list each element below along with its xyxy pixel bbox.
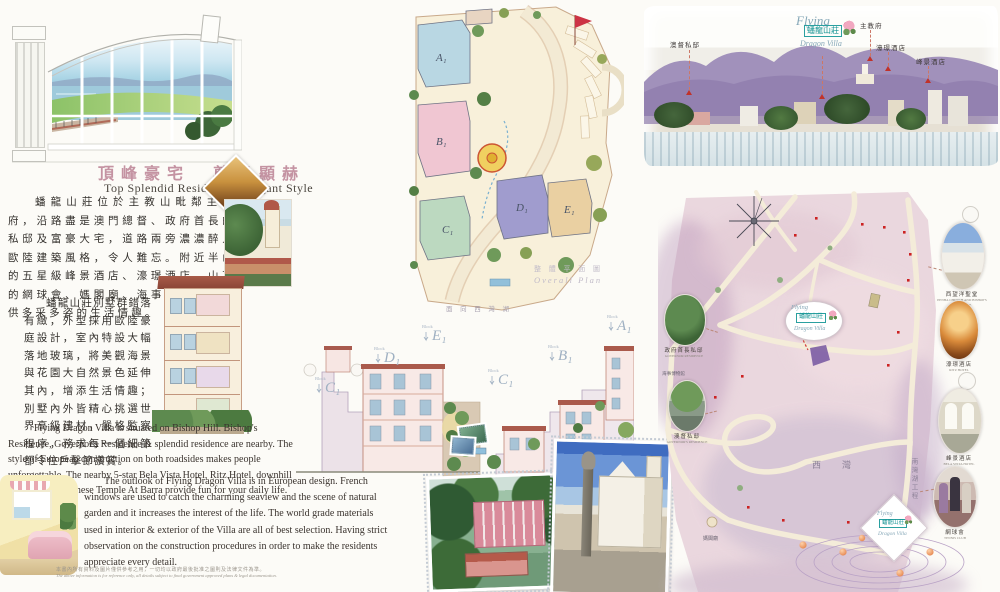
logo-dragon-villa: Dragon Villa bbox=[794, 326, 825, 332]
leader-line bbox=[888, 52, 889, 66]
roof-wall bbox=[225, 258, 291, 264]
trees bbox=[896, 108, 926, 130]
caption-en: RITZ HOTEL bbox=[934, 368, 984, 373]
svg-text:E₁: E₁ bbox=[431, 328, 446, 344]
elevation-left-section bbox=[296, 346, 480, 480]
building bbox=[948, 96, 968, 126]
disclaimer-en: The above information is for reference o… bbox=[56, 573, 386, 578]
temple-icon bbox=[707, 517, 717, 527]
label-a1: A₁ bbox=[435, 52, 447, 64]
tree-canopy bbox=[224, 204, 263, 256]
caption-zh: 網球會 bbox=[930, 528, 980, 536]
arch bbox=[945, 403, 957, 429]
floor-line bbox=[164, 394, 240, 395]
statue-column bbox=[581, 463, 594, 556]
window-view-illustration bbox=[6, 4, 242, 166]
label-block-a1: Block A₁ bbox=[607, 314, 631, 334]
pilaster-column bbox=[12, 26, 46, 162]
leader-line bbox=[928, 66, 929, 78]
figure bbox=[962, 483, 971, 513]
figure bbox=[939, 483, 948, 513]
governors-private-residence-photo bbox=[668, 380, 706, 432]
bela-vista-hotel-photo bbox=[938, 388, 982, 454]
ritz-hotel-photo bbox=[939, 300, 979, 360]
floor-line bbox=[164, 326, 240, 327]
statue bbox=[581, 451, 596, 469]
elevation-windows bbox=[370, 374, 431, 441]
logo-name-zh: 蟠龍山莊 bbox=[879, 519, 907, 528]
disclaimer-zh: 本書內所有資料及圖片僅供參考之用，一切均以政府最後批准之圖則及法律文件為準。 bbox=[56, 566, 386, 573]
label-block-e1: Block E₁ bbox=[422, 324, 446, 344]
rose-icon bbox=[828, 310, 838, 320]
label-c1: C₁ bbox=[442, 224, 453, 236]
pilaster-capital bbox=[12, 26, 46, 40]
site-plan: A₁ B₁ C₁ D₁ E₁ 整 體 平 面 圖 Overall Plan 面 … bbox=[406, 3, 624, 317]
rose-icon bbox=[842, 20, 857, 35]
red-arrow bbox=[925, 78, 931, 83]
church-facade bbox=[597, 476, 664, 549]
plan-caption-en: Overall Plan bbox=[534, 275, 602, 285]
pink-facade bbox=[472, 500, 545, 548]
pilaster-base bbox=[12, 150, 46, 162]
villa-window bbox=[184, 298, 196, 314]
government-house-photo bbox=[224, 199, 292, 287]
caption-zh: 西望洋聖堂 bbox=[932, 290, 992, 298]
building bbox=[740, 106, 758, 126]
villa-window bbox=[170, 298, 182, 314]
callout-caption: 峰景酒店 BELA VISTA HOTEL bbox=[932, 454, 986, 467]
callout-caption: 政府首長私邸 GOVERNOR RESIDENCE bbox=[656, 346, 712, 359]
label-d1: D₁ bbox=[515, 202, 528, 214]
interior-sketch bbox=[0, 475, 78, 575]
red-arrow bbox=[885, 66, 891, 71]
red-arrow bbox=[686, 90, 692, 95]
logo-dragon-villa: Dragon Villa bbox=[878, 532, 907, 538]
plan-caption-zh: 整 體 平 面 圖 bbox=[534, 264, 603, 273]
svg-text:D₁: D₁ bbox=[383, 350, 400, 366]
leader-line bbox=[822, 56, 823, 94]
villa-window bbox=[184, 334, 196, 350]
elevation-labels: Block C₁ Block D₁ Block E₁ Block C₁ Bloc… bbox=[315, 314, 631, 396]
penha-church-photo-stamp bbox=[550, 438, 672, 592]
logo-name-zh: 蟠龍山莊 bbox=[804, 25, 842, 37]
callout-caption: 澳督私邸 GOVERNOR'S RESIDENCE bbox=[662, 432, 712, 445]
pool bbox=[490, 279, 510, 286]
legal-disclaimer: 本書內所有資料及圖片僅供參考之用，一切均以政府最後批准之圖則及法律文件為準。 T… bbox=[56, 566, 386, 578]
decorative-ring bbox=[962, 206, 979, 223]
svg-text:B₁: B₁ bbox=[558, 348, 572, 364]
label-block-b1: Block B₁ bbox=[548, 344, 572, 364]
cutaway-room bbox=[196, 294, 230, 316]
map-label-sai-van: 西 灣 bbox=[812, 458, 857, 471]
water-reflections bbox=[644, 132, 998, 166]
logo-flying: Flying bbox=[791, 305, 808, 312]
tower-dome bbox=[264, 200, 279, 210]
tower bbox=[265, 206, 280, 248]
brand-logo: Flying 蟠龍山莊 Dragon Villa bbox=[796, 14, 858, 54]
logo-name-zh: 蟠龍山莊 bbox=[796, 313, 826, 323]
arch bbox=[962, 403, 974, 429]
logo-flying: Flying bbox=[877, 511, 893, 517]
caption-zh: 澳督私邸 bbox=[662, 432, 712, 440]
callout-caption: 濠璟酒店 RITZ HOTEL bbox=[934, 360, 984, 373]
penha-hill-panorama: 澳督私邸 主教府 濠璟酒店 峰景酒店 Flying 蟠龍山莊 Dragon Vi… bbox=[644, 6, 998, 166]
caption-en: GOVERNOR RESIDENCE bbox=[656, 354, 712, 359]
governor-residence-photo bbox=[664, 294, 706, 346]
floor-line bbox=[164, 360, 240, 361]
awning bbox=[10, 481, 50, 490]
caption-en: TENNIS CLUB bbox=[930, 536, 980, 541]
panorama-label-bishops-residence: 主教府 bbox=[860, 20, 883, 30]
caption-zh: 濠璟酒店 bbox=[934, 360, 984, 368]
mini-stamp bbox=[451, 437, 474, 454]
leader-line bbox=[689, 50, 690, 90]
panorama-label-governor-residence: 澳督私邸 bbox=[670, 39, 700, 49]
panorama-label-bela-vista-hotel: 峰景酒店 bbox=[916, 56, 946, 66]
red-arrow bbox=[819, 94, 825, 99]
caption-zh: 政府首長私邸 bbox=[656, 346, 712, 354]
penha-church-body bbox=[856, 74, 874, 84]
cutaway-room bbox=[196, 332, 230, 354]
villa-window bbox=[170, 368, 182, 384]
rose-icon bbox=[904, 515, 913, 524]
label-e1: E₁ bbox=[563, 204, 575, 216]
villa-window bbox=[184, 368, 196, 384]
trees bbox=[824, 94, 870, 124]
red-roof-houses bbox=[465, 551, 529, 577]
pilaster-shaft bbox=[15, 42, 45, 148]
label-b1: B₁ bbox=[436, 136, 447, 148]
caption-en: GOVERNOR'S RESIDENCE bbox=[662, 440, 712, 445]
villa-window bbox=[170, 334, 182, 350]
logo-dragon-villa: Dragon Villa bbox=[800, 40, 842, 48]
label-block-d1: Block D₁ bbox=[374, 346, 400, 366]
panorama-label-ritz-hotel: 濠璟酒店 bbox=[876, 42, 906, 52]
caption-zh: 峰景酒店 bbox=[932, 454, 986, 462]
villa-cutaway-illustration bbox=[156, 276, 248, 434]
tennis-club-photo bbox=[933, 466, 977, 528]
plaza-center bbox=[487, 153, 497, 163]
diamond-logo-content: Flying 蟠龍山莊 Dragon Villa bbox=[871, 505, 917, 551]
figure bbox=[950, 477, 960, 511]
map-label-maritime-museum: 海事博物館 bbox=[662, 371, 685, 377]
potted-plant bbox=[60, 503, 76, 533]
label-block-c1-right: Block C₁ bbox=[488, 368, 513, 388]
leader-line bbox=[870, 30, 871, 56]
brochure-page: 頂峰豪宅 尊貴顯赫 Top Splendid Residence / Elega… bbox=[0, 0, 1000, 592]
trees bbox=[654, 102, 694, 128]
svg-text:C₁: C₁ bbox=[498, 372, 513, 388]
building bbox=[928, 90, 942, 124]
map-label-ma-kok-temple: 媽閣廟 bbox=[703, 535, 718, 542]
trees bbox=[764, 106, 798, 130]
cutaway-room bbox=[196, 366, 230, 388]
red-arrow bbox=[867, 56, 873, 61]
svg-text:C₁: C₁ bbox=[325, 380, 340, 396]
svg-text:A₁: A₁ bbox=[616, 318, 631, 334]
map-oval-logo: Flying 蟠龍山莊 Dragon Villa bbox=[785, 301, 843, 341]
sofa bbox=[28, 531, 72, 559]
waterfront bbox=[644, 132, 998, 166]
gatehouse bbox=[466, 9, 492, 25]
penha-church-photo bbox=[941, 222, 985, 290]
sketch-window bbox=[12, 490, 52, 520]
callout-caption: 網球會 TENNIS CLUB bbox=[930, 528, 980, 541]
